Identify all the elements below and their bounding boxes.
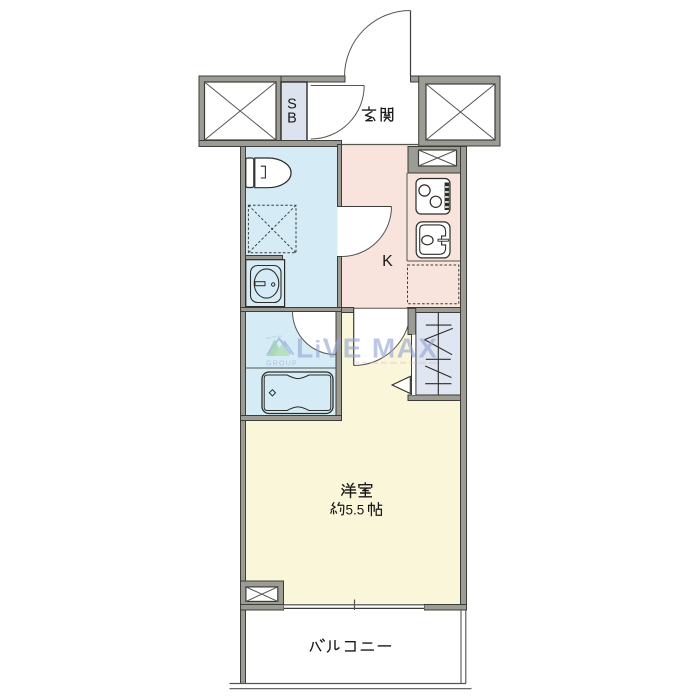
svg-text:5.5: 5.5: [346, 502, 365, 517]
svg-text:LiVE MAX: LiVE MAX: [296, 333, 438, 364]
svg-text:B: B: [287, 111, 297, 127]
svg-text:K: K: [382, 253, 393, 270]
svg-text:GROUP: GROUP: [266, 361, 298, 368]
